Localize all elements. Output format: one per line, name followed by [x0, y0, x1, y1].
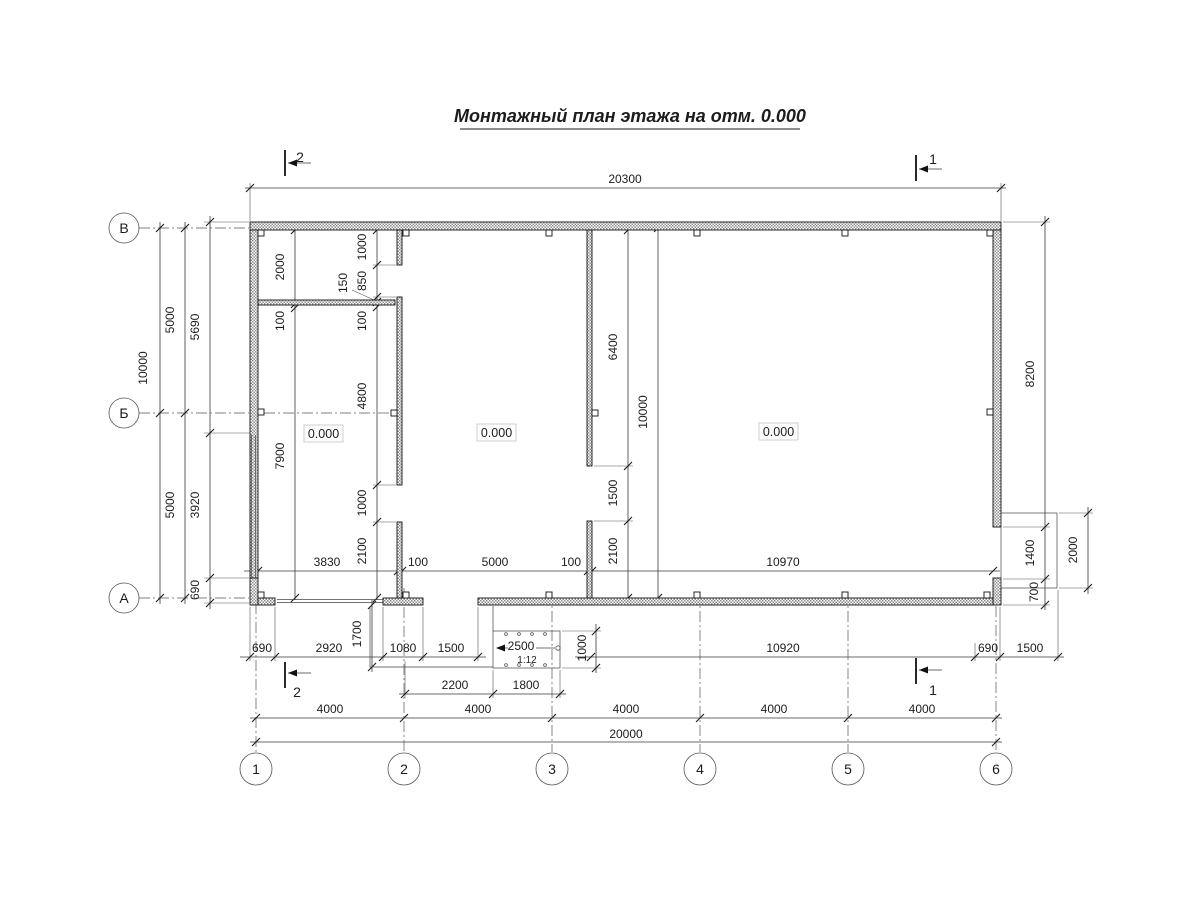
- dim-room1-2000: 2000: [273, 253, 287, 280]
- dim-row2-2200: 2200: [442, 678, 469, 692]
- dim-right-8200: 8200: [1023, 360, 1037, 387]
- dim-ramp-1000: 1000: [575, 634, 589, 661]
- wall-bottom-segment: [383, 598, 423, 605]
- dimension-ticks: [156, 184, 1092, 746]
- dim-p1-1000b: 1000: [355, 489, 369, 516]
- section-label-2-bottom: 2: [293, 684, 301, 700]
- dim-chain-100b: 100: [561, 555, 581, 569]
- dim-left-690: 690: [188, 580, 202, 600]
- dim-bottom-overall: 20000: [609, 727, 643, 741]
- dim-row1-1500r: 1500: [1017, 641, 1044, 655]
- axis-row-label-B: Б: [119, 405, 128, 421]
- axis-col-label-2: 2: [400, 761, 408, 777]
- wall-left-foot: [258, 598, 275, 605]
- dim-p1-1000a: 1000: [355, 233, 369, 260]
- dim-right-700: 700: [1027, 582, 1041, 602]
- section-label-1-bottom: 1: [929, 682, 937, 698]
- ramp-length-label: 2500: [508, 639, 535, 653]
- dim-p2-2100: 2100: [606, 537, 620, 564]
- dim-left-10000: 10000: [136, 351, 150, 385]
- axis-row-label-V: В: [119, 220, 128, 236]
- wall-left-stub: [250, 578, 258, 605]
- partition2-upper: [587, 230, 592, 466]
- dim-span-5: 4000: [909, 702, 936, 716]
- wall-right: [993, 230, 1001, 527]
- axis-col-label-1: 1: [252, 761, 260, 777]
- section-label-2-top: 2: [296, 149, 304, 165]
- wall-interior-horizontal: [258, 300, 395, 305]
- dim-mid-10000: 10000: [636, 395, 650, 429]
- dim-porch-2000: 2000: [1066, 536, 1080, 563]
- dim-p1-150: 150: [336, 273, 350, 293]
- dim-left-5000b: 5000: [163, 491, 177, 518]
- dim-row1-1500: 1500: [438, 641, 465, 655]
- dim-p1-100: 100: [355, 311, 369, 331]
- wall-right-stub: [993, 578, 1001, 605]
- ramp-arrowhead: [496, 645, 505, 652]
- plan-drawing: Монтажный план этажа на отм. 0.000 20300…: [0, 0, 1200, 900]
- axis-circles: [109, 213, 1012, 785]
- dim-row1-690r: 690: [978, 641, 998, 655]
- dimension-lines: [160, 188, 1088, 742]
- dim-chain-10970: 10970: [766, 555, 800, 569]
- wall-top: [250, 222, 1001, 230]
- dim-row1-690l: 690: [252, 641, 272, 655]
- dim-p1-2100: 2100: [355, 537, 369, 564]
- dim-right-1400: 1400: [1023, 539, 1037, 566]
- dim-row1-10920: 10920: [766, 641, 800, 655]
- level-room3: 0.000: [763, 425, 794, 439]
- windows: [252, 435, 384, 603]
- axis-row-label-A: А: [119, 590, 129, 606]
- partition2-lower: [587, 521, 592, 598]
- ramp-slope-label: 1:12: [517, 655, 537, 666]
- dim-span-1: 4000: [317, 702, 344, 716]
- section-label-1-top: 1: [929, 151, 937, 167]
- dim-span-4: 4000: [761, 702, 788, 716]
- drawing-title: Монтажный план этажа на отм. 0.000: [454, 106, 806, 126]
- level-room1: 0.000: [308, 427, 339, 441]
- dim-chain-5000: 5000: [482, 555, 509, 569]
- level-marks: [304, 423, 798, 442]
- partition1-stub: [397, 230, 402, 265]
- dim-row1-2920: 2920: [316, 641, 343, 655]
- dim-p1-850: 850: [355, 271, 369, 291]
- ramp-arrow-origin: [556, 646, 560, 650]
- entrance-structures: [370, 513, 1057, 668]
- dim-span-3: 4000: [613, 702, 640, 716]
- dim-top-overall: 20300: [608, 172, 642, 186]
- dim-row2-1800: 1800: [513, 678, 540, 692]
- dim-chain-100a: 100: [408, 555, 428, 569]
- dim-room1-7900: 7900: [273, 442, 287, 469]
- floor-plan-sheet: Монтажный план этажа на отм. 0.000 20300…: [0, 0, 1200, 900]
- dim-left-3920: 3920: [188, 491, 202, 518]
- wall-bottom-main: [478, 598, 993, 605]
- dim-left-5690: 5690: [188, 313, 202, 340]
- dim-platform-1700: 1700: [350, 620, 364, 647]
- dim-p1-4800: 4800: [355, 382, 369, 409]
- partition1-main: [397, 297, 402, 485]
- dim-left-5000a: 5000: [163, 306, 177, 333]
- dim-room1-100: 100: [273, 311, 287, 331]
- section-1-bottom: [916, 658, 942, 684]
- axis-lines: [139, 228, 996, 752]
- axis-col-label-3: 3: [548, 761, 556, 777]
- dim-p2-6400: 6400: [606, 333, 620, 360]
- axis-col-label-6: 6: [992, 761, 1000, 777]
- dim-chain-3830: 3830: [314, 555, 341, 569]
- entrance-platform: [370, 606, 493, 667]
- dim-row1-1080: 1080: [390, 641, 417, 655]
- dim-p2-1500: 1500: [606, 479, 620, 506]
- level-room2: 0.000: [481, 426, 512, 440]
- axis-col-label-5: 5: [844, 761, 852, 777]
- axis-col-label-4: 4: [696, 761, 704, 777]
- partition1-lower: [397, 522, 402, 598]
- dim-span-2: 4000: [465, 702, 492, 716]
